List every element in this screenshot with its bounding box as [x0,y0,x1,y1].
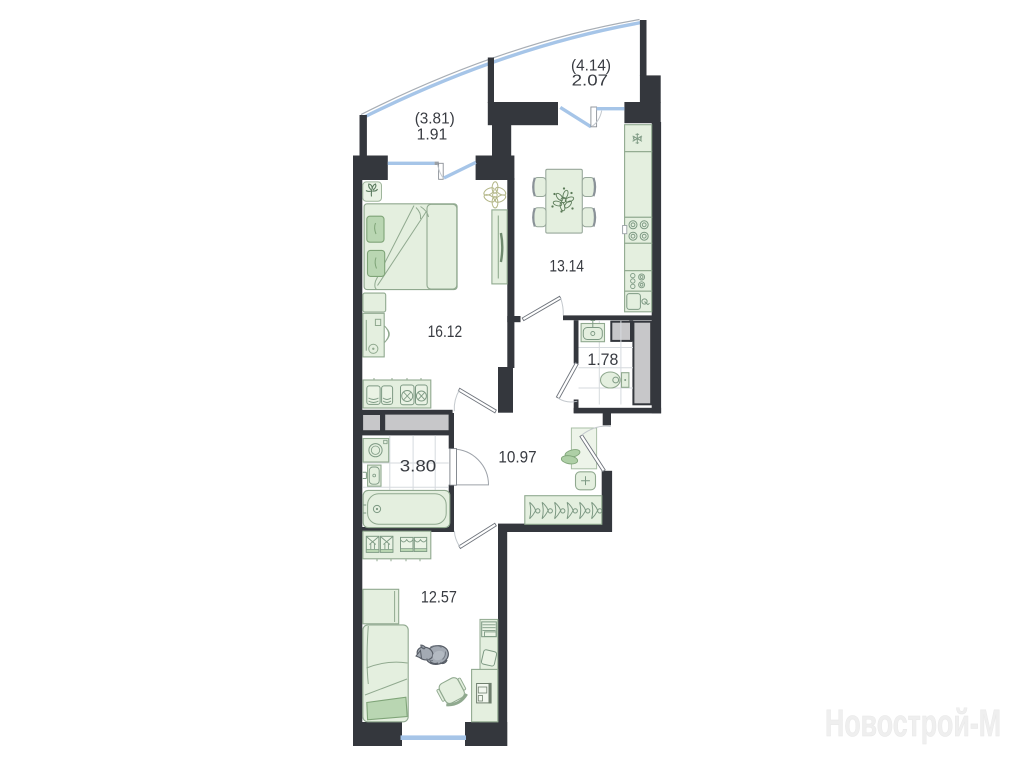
svg-text:13.14: 13.14 [549,257,584,275]
svg-text:10.97: 10.97 [498,448,536,466]
svg-text:2.07: 2.07 [572,73,608,90]
svg-text:1.91: 1.91 [417,127,448,144]
svg-text:16.12: 16.12 [428,323,463,341]
svg-text:1.78: 1.78 [587,351,618,369]
svg-text:12.57: 12.57 [421,589,457,607]
svg-text:Новострой-М: Новострой-М [825,703,1001,745]
svg-text:(3.81): (3.81) [415,111,455,128]
svg-text:3.80: 3.80 [400,457,437,475]
